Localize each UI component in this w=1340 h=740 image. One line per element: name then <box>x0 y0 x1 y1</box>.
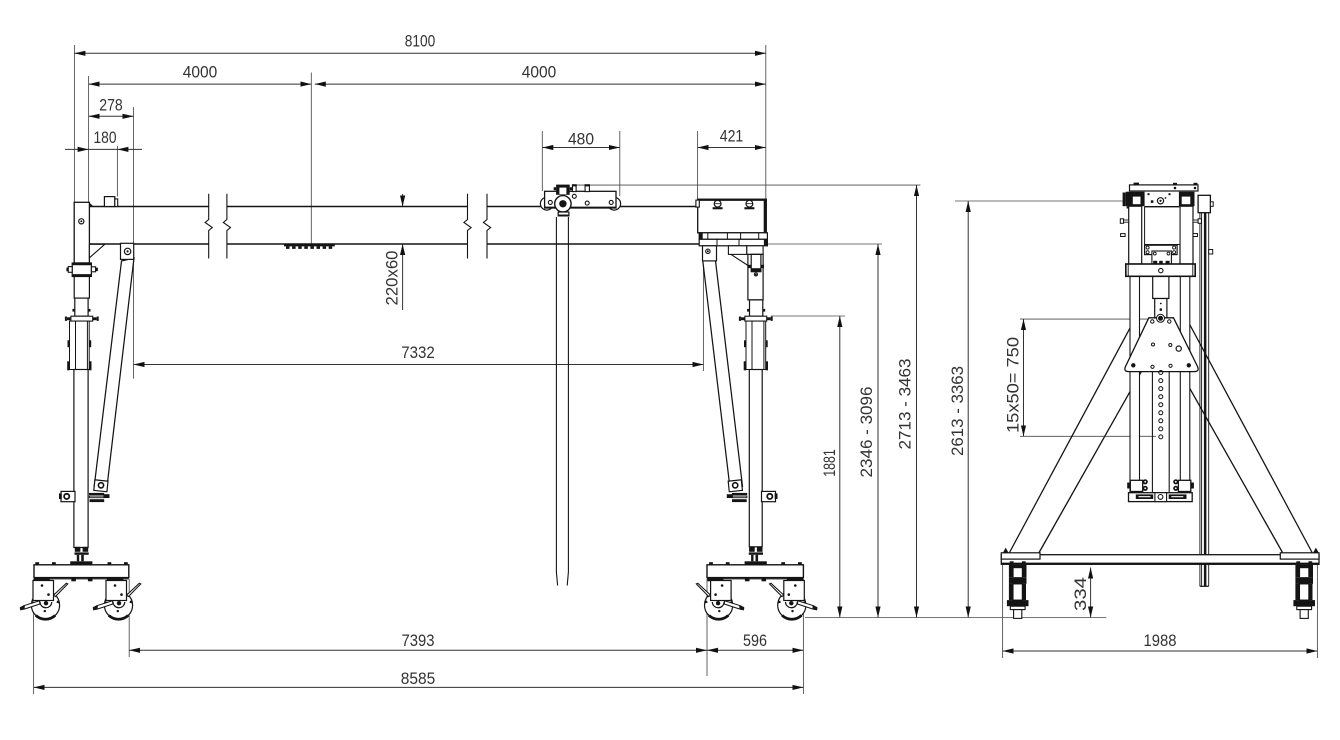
svg-text:8585: 8585 <box>401 669 436 688</box>
svg-text:4000: 4000 <box>183 63 218 82</box>
svg-text:596: 596 <box>743 631 767 650</box>
svg-text:220x60: 220x60 <box>383 251 402 306</box>
svg-text:480: 480 <box>568 129 594 148</box>
svg-text:2613 - 3363: 2613 - 3363 <box>948 366 967 456</box>
svg-text:8100: 8100 <box>405 32 436 51</box>
svg-text:4000: 4000 <box>522 63 557 82</box>
svg-text:7393: 7393 <box>402 631 435 650</box>
svg-text:278: 278 <box>99 96 123 115</box>
svg-text:180: 180 <box>94 128 117 147</box>
svg-text:15x50= 750: 15x50= 750 <box>1004 337 1023 433</box>
svg-text:1988: 1988 <box>1144 631 1177 650</box>
svg-text:2346 - 3096: 2346 - 3096 <box>857 387 876 478</box>
svg-text:1881: 1881 <box>820 449 839 477</box>
svg-text:2713 - 3463: 2713 - 3463 <box>896 359 915 450</box>
svg-text:7332: 7332 <box>401 343 435 362</box>
svg-text:334: 334 <box>1071 577 1090 611</box>
svg-text:421: 421 <box>720 127 744 146</box>
